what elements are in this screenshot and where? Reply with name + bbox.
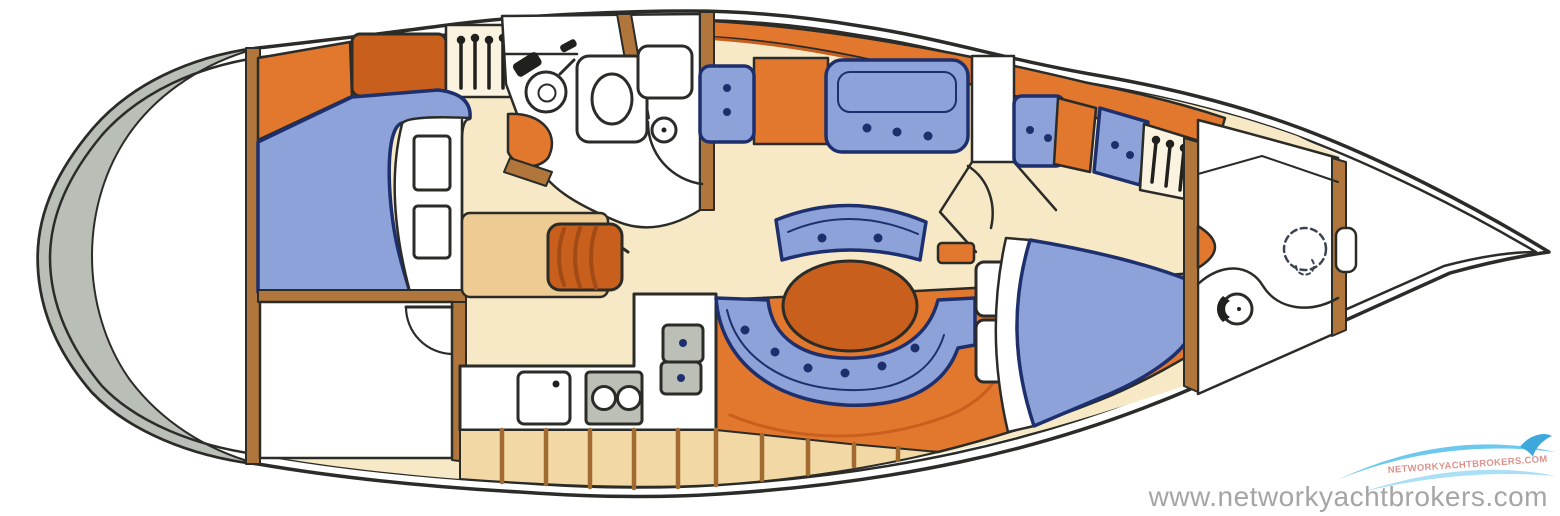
- toilet-icon: [1217, 294, 1252, 324]
- floor-plan-svg: NETWORKYACHTBROKERS.COM www.networkyacht…: [0, 0, 1560, 516]
- port-settee-cushion: [826, 60, 968, 152]
- aft-cabin-dresser: [352, 34, 446, 96]
- saloon-table: [783, 261, 917, 351]
- bench-button: [818, 234, 827, 243]
- storage-room-floor: [260, 302, 452, 458]
- fwd-head-aft-bulkhead: [1184, 138, 1198, 392]
- storage-wall-horizontal: [258, 290, 466, 302]
- bench-button: [874, 234, 883, 243]
- port-settee-cabinet: [754, 58, 828, 144]
- fwd-cushion-divider: [1054, 98, 1096, 172]
- fridge-icon: [661, 325, 703, 394]
- forward-head: [1184, 120, 1356, 394]
- shower-seat: [638, 46, 692, 98]
- aft-cabin-seat-cushion: [414, 206, 450, 258]
- fwd-head-room: [1198, 120, 1338, 394]
- stove-icon: [586, 372, 642, 424]
- sink-icon: [518, 372, 570, 424]
- watermark-url-text: www.networkyachtbrokers.com: [1148, 481, 1548, 512]
- chain-locker-door: [1336, 228, 1356, 272]
- yacht-floor-plan: NETWORKYACHTBROKERS.COM www.networkyacht…: [0, 0, 1560, 516]
- companionway: [462, 213, 622, 297]
- saloon-port-settee: [700, 58, 968, 152]
- aft-cabin-seat-cushion: [414, 136, 450, 190]
- port-backrest-cushion: [700, 66, 754, 142]
- doorway-step: [938, 243, 974, 263]
- logo-dolphin-icon: [1520, 434, 1552, 457]
- broker-watermark: NETWORKYACHTBROKERS.COM www.networkyacht…: [1148, 434, 1556, 512]
- bulkhead-door-opening: [972, 56, 1014, 162]
- aft-storage-room: [258, 290, 466, 462]
